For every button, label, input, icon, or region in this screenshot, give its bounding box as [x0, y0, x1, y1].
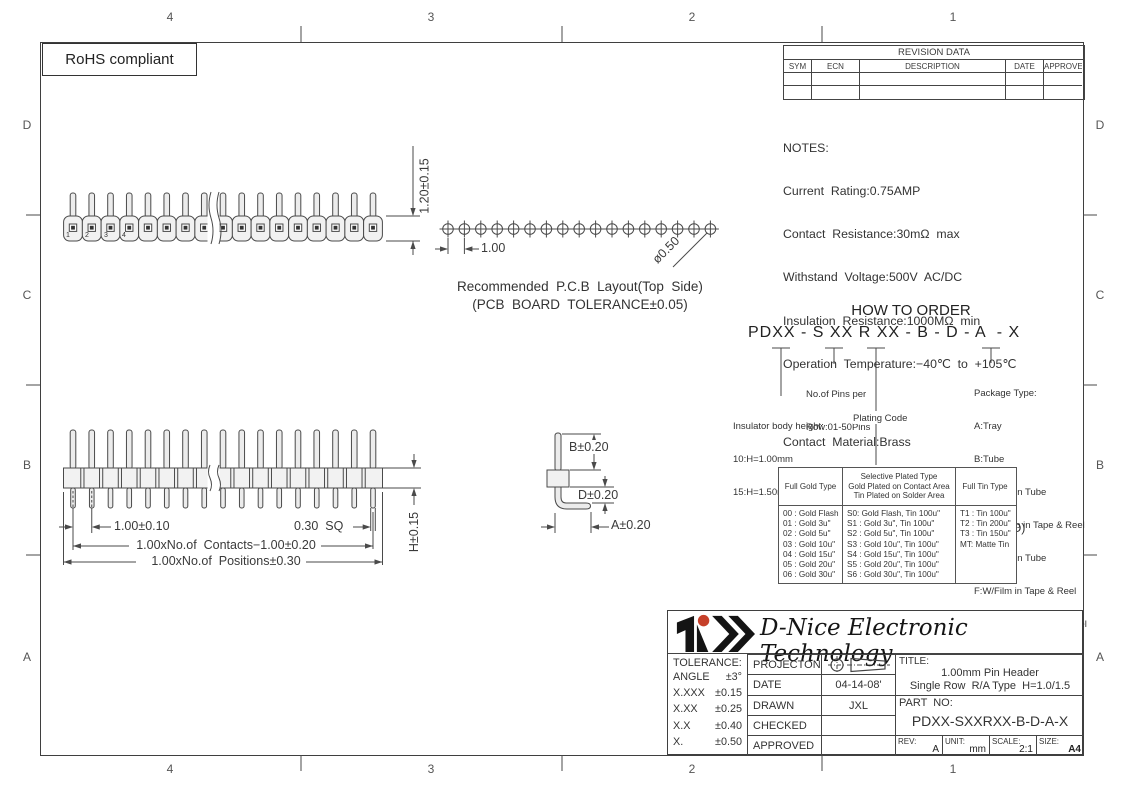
- dim-tail-b: B±0.20: [567, 440, 611, 454]
- plating-table-body: 00 : Gold Flash01 : Gold 3u" 02 : Gold 5…: [779, 506, 1016, 583]
- note-line: Contact Resistance:30mΩ max: [783, 227, 1025, 241]
- dim-pcb-pitch: 1.00: [481, 241, 505, 255]
- rohs-badge: RoHS compliant: [42, 43, 197, 76]
- revision-empty-row: [784, 86, 1084, 99]
- revision-col-approved: APPROVED: [1044, 60, 1082, 73]
- revision-col-date: DATE: [1006, 60, 1044, 73]
- pcb-caption-2: (PCB BOARD TOLERANCE±0.05): [418, 297, 742, 312]
- revision-table-header-row: SYM ECN DESCRIPTION DATE APPROVED: [784, 60, 1084, 73]
- projection-symbol-cell: [821, 654, 895, 674]
- drawn-label: DRAWN: [747, 695, 821, 715]
- dim-tail-a: A±0.20: [611, 518, 651, 532]
- note-line: Withstand Voltage:500V AC/DC: [783, 270, 1025, 284]
- plating-gold-list: 00 : Gold Flash01 : Gold 3u" 02 : Gold 5…: [779, 506, 843, 583]
- revision-col-sym: SYM: [784, 60, 812, 73]
- revision-col-description: DESCRIPTION: [860, 60, 1006, 73]
- part-no-value: PDXX-SXXRXX-B-D-A-X: [896, 713, 1084, 729]
- plating-tin-list: T1 : Tin 100u"T2 : Tin 200u" T3 : Tin 15…: [956, 506, 1014, 583]
- drawing-title-line2: Single Row R/A Type H=1.0/1.5: [896, 680, 1084, 692]
- plating-selective-list: S0: Gold Flash, Tin 100u"S1 : Gold 3u", …: [843, 506, 956, 583]
- note-line: Current Rating:0.75AMP: [783, 184, 1025, 198]
- notes-heading: NOTES:: [783, 141, 1025, 155]
- tolerance-heading: TOLERANCE:: [673, 657, 742, 669]
- title-label: TITLE:: [899, 656, 929, 667]
- title-cell: TITLE: 1.00mm Pin Header Single Row R/A …: [895, 654, 1084, 695]
- company-logo-icon: [674, 613, 756, 653]
- dim-pin-square: 0.30 SQ: [294, 519, 343, 533]
- dim-pitch: 1.00±0.10: [114, 519, 170, 533]
- how-to-order-heading: HOW TO ORDER: [821, 302, 1001, 319]
- plating-header-gold: Full Gold Type: [779, 468, 843, 505]
- unit-cell: UNIT: mm: [942, 735, 989, 756]
- order-part-string: PDXX - S XX R XX - B - D - A - X: [748, 324, 1020, 342]
- drawing-sheet: 4 3 2 1 4 3 2 1 D C B A D C B A RoHS com…: [0, 0, 1123, 794]
- checked-label: CHECKED: [747, 715, 821, 735]
- revision-empty-row: [784, 73, 1084, 86]
- revision-table-title: REVISION DATA: [784, 46, 1084, 60]
- approved-label: APPROVED: [747, 735, 821, 756]
- plating-header-selective: Selective Plated Type Gold Plated on Con…: [843, 468, 956, 505]
- rohs-label: RoHS compliant: [65, 51, 173, 68]
- pin-number-2: 2: [85, 232, 89, 239]
- dim-body-height: H±0.15: [407, 507, 421, 557]
- revision-col-ecn: ECN: [812, 60, 860, 73]
- third-angle-projection-icon: [827, 656, 891, 674]
- drawing-title-line1: 1.00mm Pin Header: [896, 667, 1084, 679]
- plating-code-table: Full Gold Type Selective Plated Type Gol…: [778, 467, 1017, 584]
- tolerance-cell: TOLERANCE: ANGLE±3° X.XXX±0.15 X.XX±0.25…: [668, 654, 747, 756]
- approved-value: [821, 735, 895, 756]
- scale-cell: SCALE: 2:1: [989, 735, 1036, 756]
- pin-number-1: 1: [66, 232, 70, 239]
- pcb-caption-1: Recommended P.C.B Layout(Top Side): [418, 279, 742, 294]
- rev-cell: REV: A: [895, 735, 942, 756]
- dim-tail-d: D±0.20: [576, 488, 620, 502]
- drawn-value: JXL: [821, 695, 895, 715]
- title-block-logo-row: D-Nice Electronic Technology: [668, 611, 1082, 654]
- title-block: D-Nice Electronic Technology TOLERANCE: …: [667, 610, 1083, 755]
- plating-header-tin: Full Tin Type: [956, 468, 1014, 505]
- date-label: DATE: [747, 674, 821, 695]
- pin-number-4: 4: [122, 232, 126, 239]
- dim-positions-span: 1.00xNo.of Positions±0.30: [133, 554, 319, 568]
- order-plating-code-label: Plating Code: [853, 413, 907, 424]
- checked-value: [821, 715, 895, 735]
- dim-pin-height: 1.20±0.15: [418, 139, 432, 234]
- projection-label: PROJECTON: [747, 654, 821, 674]
- revision-table: REVISION DATA SYM ECN DESCRIPTION DATE A…: [783, 45, 1085, 100]
- plating-table-header: Full Gold Type Selective Plated Type Gol…: [779, 468, 1016, 506]
- size-cell: SIZE: A4: [1036, 735, 1084, 756]
- dim-contacts-span: 1.00xNo.of Contacts−1.00±0.20: [126, 538, 326, 552]
- part-no-label: PART NO:: [899, 697, 953, 709]
- pin-number-3: 3: [104, 232, 108, 239]
- date-value: 04-14-08': [821, 674, 895, 695]
- part-no-cell: PART NO: PDXX-SXXRXX-B-D-A-X: [895, 695, 1084, 735]
